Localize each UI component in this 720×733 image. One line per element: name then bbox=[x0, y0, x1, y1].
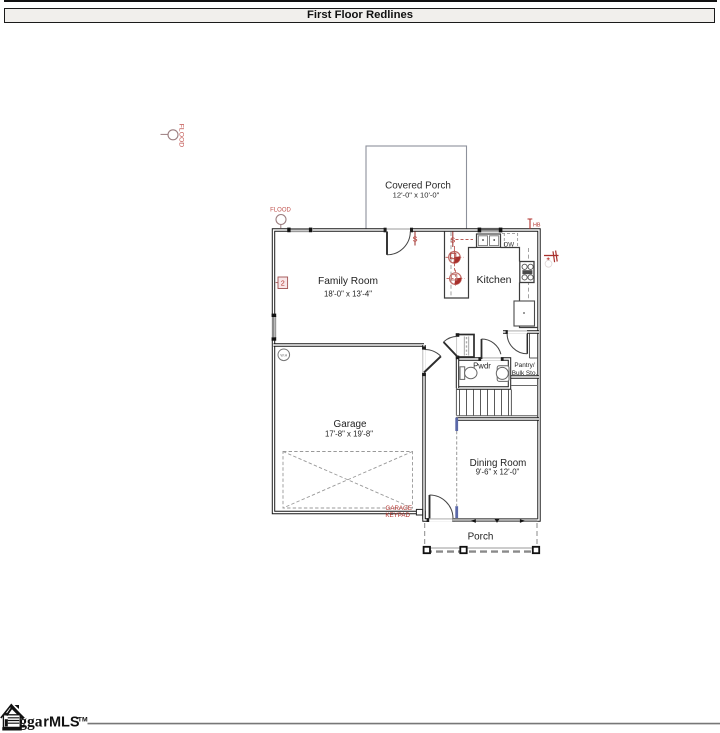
svg-text:rMLS: rMLS bbox=[43, 714, 80, 730]
svg-text:Porch: Porch bbox=[468, 531, 494, 542]
svg-text:FLOOD: FLOOD bbox=[270, 208, 291, 214]
svg-text:KEYPAD: KEYPAD bbox=[385, 512, 410, 519]
svg-text:Kitchen: Kitchen bbox=[476, 274, 511, 286]
svg-text:S: S bbox=[412, 235, 417, 244]
svg-text:17'-8" x 19'-8": 17'-8" x 19'-8" bbox=[325, 430, 373, 439]
svg-text:Family Room: Family Room bbox=[318, 276, 378, 287]
svg-text:12'-0" x 10'-0": 12'-0" x 10'-0" bbox=[393, 190, 440, 199]
svg-text:gga: gga bbox=[19, 713, 43, 730]
svg-text:Bulk Sto.: Bulk Sto. bbox=[512, 370, 538, 377]
svg-text:9'-6" x 12'-0": 9'-6" x 12'-0" bbox=[476, 467, 520, 476]
svg-text:W.H: W.H bbox=[280, 354, 287, 358]
svg-text:DW: DW bbox=[504, 241, 514, 248]
svg-text:S: S bbox=[450, 236, 455, 245]
svg-text:Pantry/: Pantry/ bbox=[514, 362, 534, 369]
svg-text:TM: TM bbox=[78, 717, 88, 724]
svg-text:Garage: Garage bbox=[334, 419, 367, 430]
svg-text:HB: HB bbox=[533, 223, 541, 229]
svg-text:FLOOD: FLOOD bbox=[178, 124, 185, 148]
svg-text:2: 2 bbox=[281, 279, 285, 288]
svg-text:18'-0" x 13'-4": 18'-0" x 13'-4" bbox=[324, 290, 372, 299]
